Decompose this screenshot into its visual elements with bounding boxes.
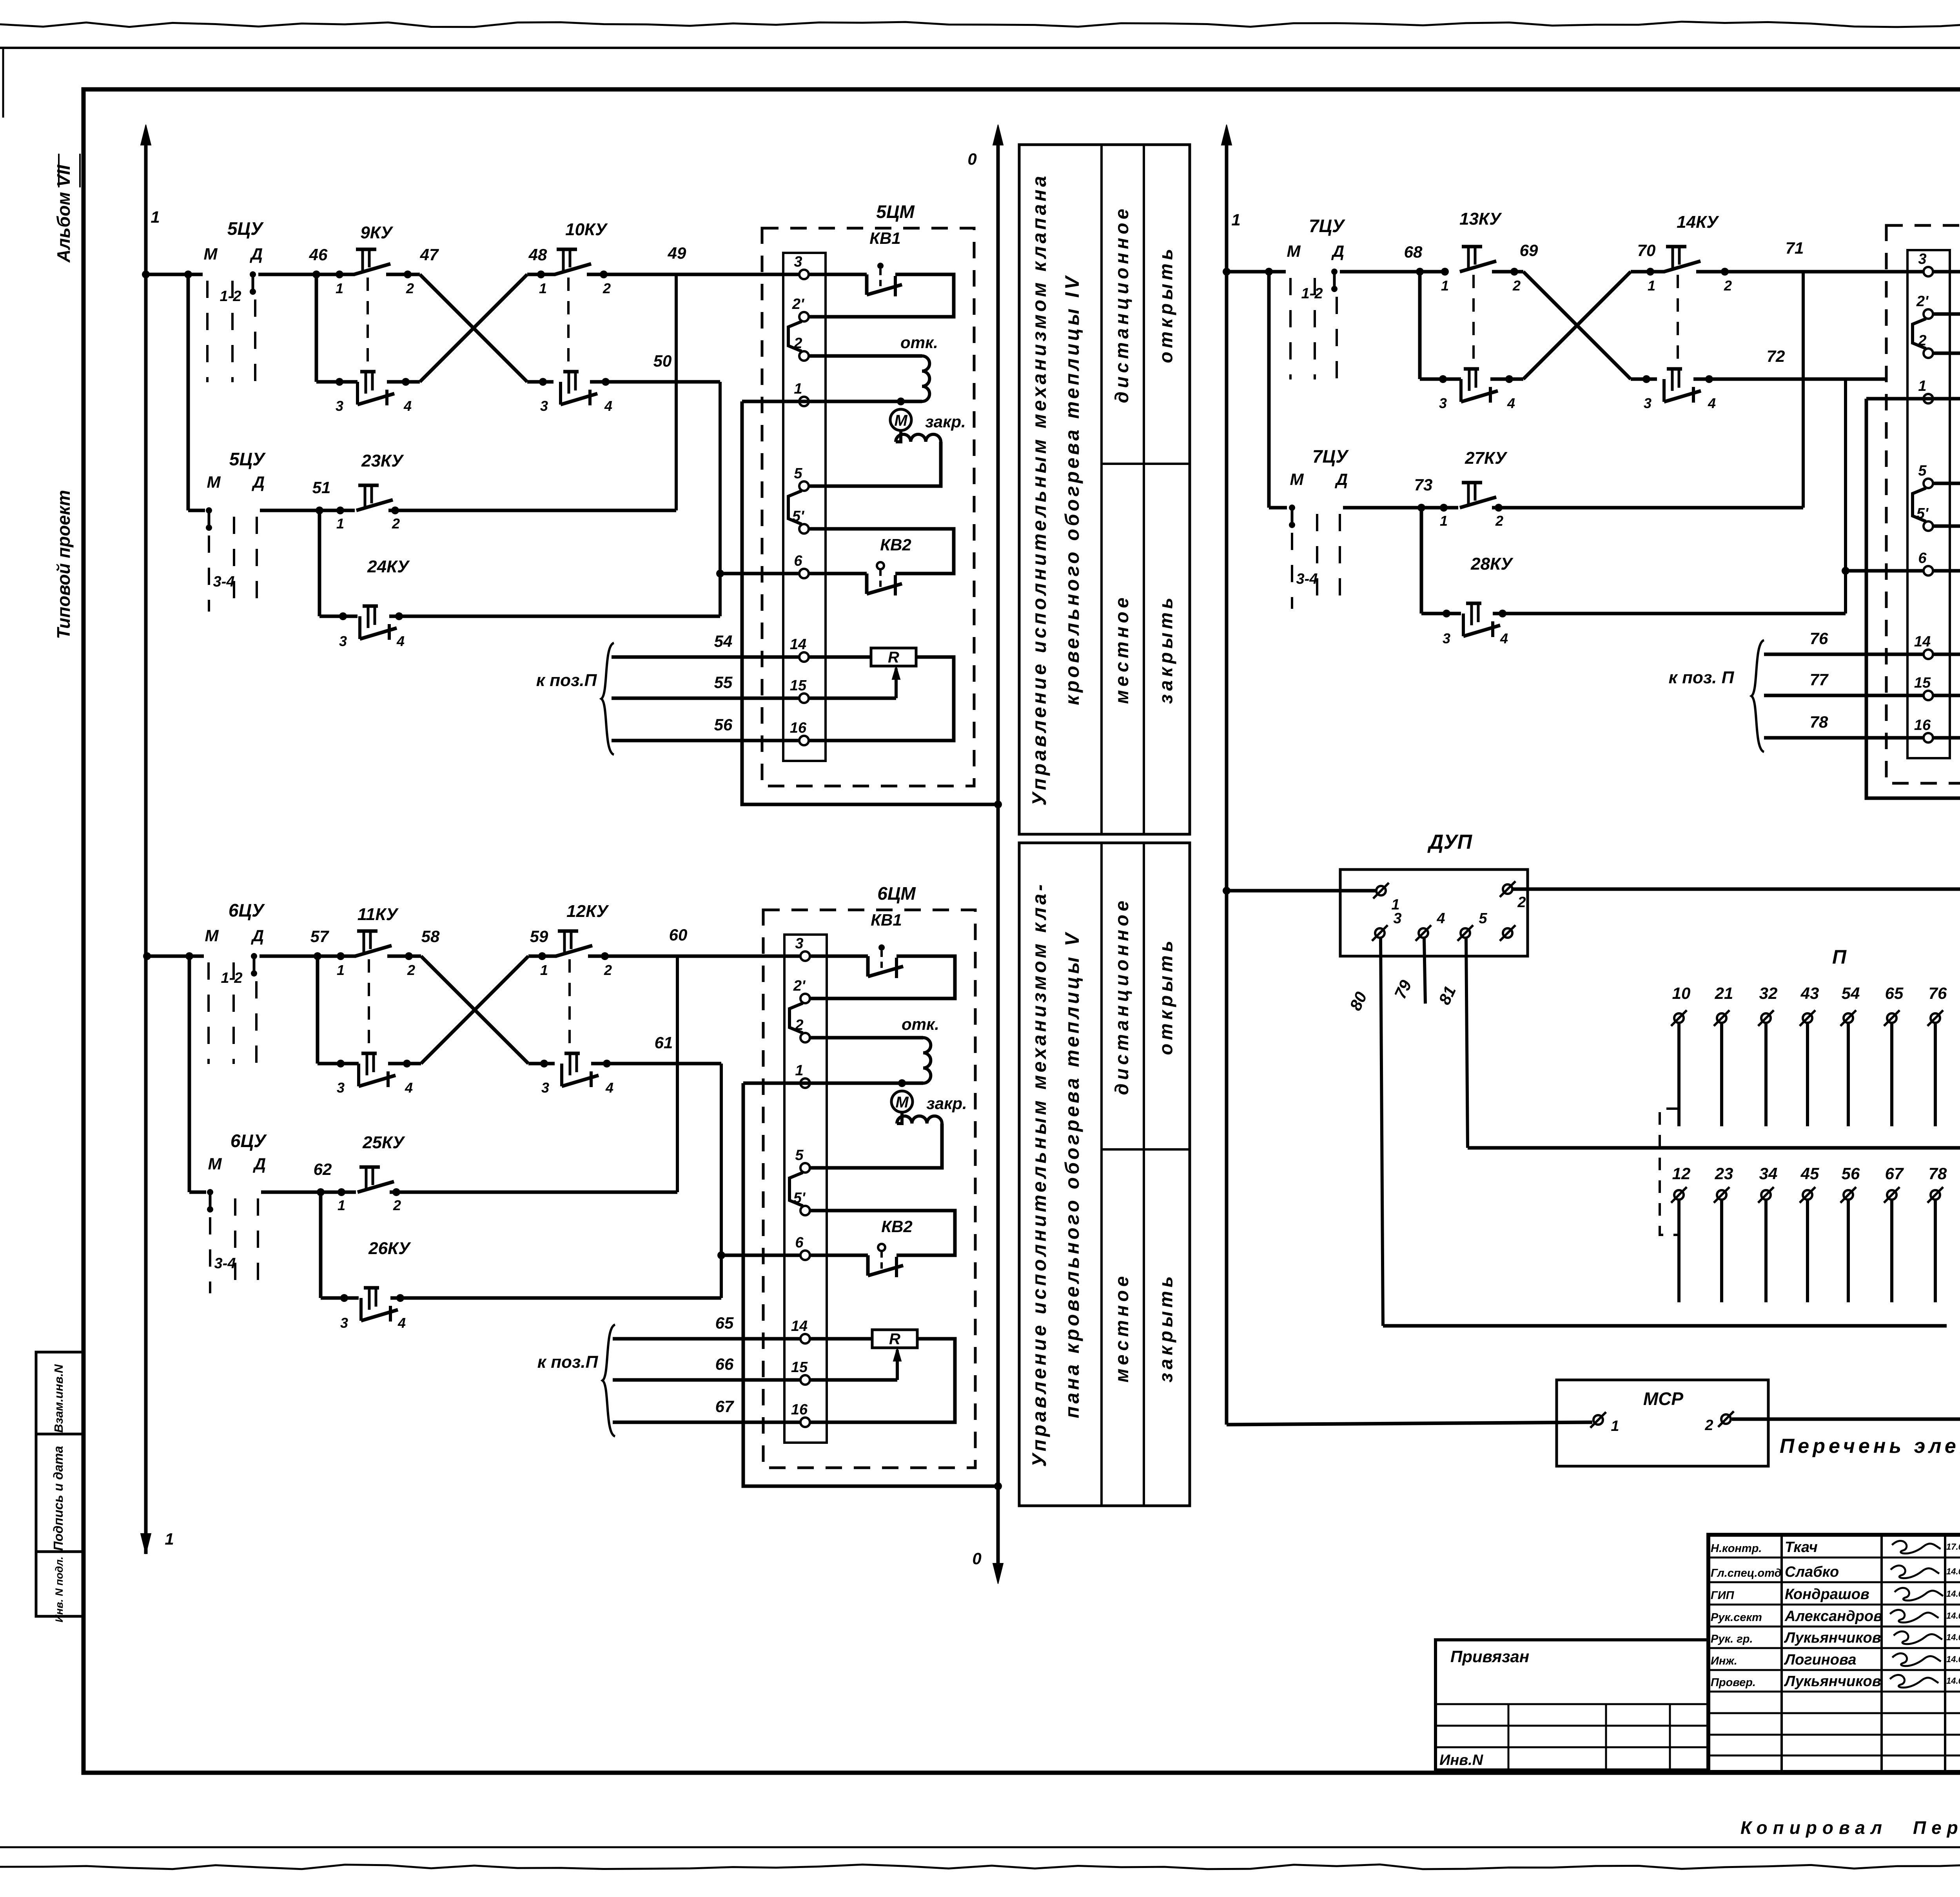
svg-text:1: 1 [1440,513,1448,529]
svg-text:Рук. гр.: Рук. гр. [1711,1633,1753,1645]
svg-text:76: 76 [1929,984,1947,1002]
svg-text:12: 12 [1672,1164,1691,1183]
svg-text:М: М [1290,470,1304,488]
svg-text:54: 54 [714,632,733,650]
svg-text:КВ1: КВ1 [869,229,901,247]
svg-text:Д: Д [250,245,263,263]
svg-text:10КУ: 10КУ [565,220,608,239]
svg-text:1: 1 [539,280,547,296]
svg-text:М: М [894,412,908,429]
svg-text:1: 1 [336,516,344,532]
svg-text:1-2: 1-2 [220,288,241,305]
svg-text:13КУ: 13КУ [1459,209,1502,229]
svg-text:7ЦУ: 7ЦУ [1312,446,1349,467]
svg-text:2: 2 [406,280,414,296]
svg-text:М: М [895,1094,909,1111]
svg-text:71: 71 [1786,239,1804,257]
svg-text:43: 43 [1800,984,1819,1002]
svg-text:Привязан: Привязан [1450,1647,1529,1666]
svg-text:1: 1 [337,962,345,978]
svg-text:11КУ: 11КУ [358,905,399,924]
svg-text:47: 47 [420,245,439,264]
svg-text:1-2: 1-2 [1301,285,1323,302]
svg-text:0: 0 [972,1549,981,1568]
svg-text:15: 15 [790,677,807,694]
svg-text:4: 4 [405,1080,413,1096]
svg-text:2: 2 [1512,278,1521,294]
svg-text:2: 2 [1517,894,1526,911]
svg-text:закрыть: закрыть [1156,1273,1177,1382]
svg-text:КВ2: КВ2 [880,536,911,554]
svg-text:П: П [1832,946,1847,968]
svg-text:6: 6 [1918,550,1927,566]
svg-text:1: 1 [1648,278,1655,294]
svg-text:3: 3 [336,398,343,414]
svg-text:2': 2' [793,978,806,994]
svg-text:3: 3 [1439,395,1447,411]
svg-text:к поз.П: к поз.П [536,671,597,690]
svg-text:59: 59 [530,927,548,946]
svg-text:48: 48 [528,245,547,264]
svg-text:14.01.86: 14.01.86 [1946,1654,1960,1664]
svg-text:1: 1 [794,381,802,397]
svg-text:60: 60 [669,926,688,944]
svg-text:дистанционное: дистанционное [1112,205,1132,403]
svg-text:5: 5 [1918,463,1927,479]
svg-text:5ЦМ: 5ЦМ [876,201,915,222]
svg-text:70: 70 [1637,241,1656,260]
svg-text:2: 2 [1704,1417,1713,1434]
svg-text:49: 49 [668,244,686,262]
svg-text:закр.: закр. [926,1094,967,1113]
svg-text:2: 2 [1724,278,1732,294]
svg-text:55: 55 [714,673,733,692]
svg-text:23: 23 [1715,1164,1733,1183]
svg-text:3: 3 [340,1315,348,1331]
svg-text:16: 16 [791,1401,808,1418]
svg-text:Слабко: Слабко [1785,1564,1839,1580]
svg-text:Лукьянчиков: Лукьянчиков [1784,1673,1881,1690]
svg-text:R: R [888,649,899,666]
svg-text:23КУ: 23КУ [361,451,404,470]
svg-text:ДУП: ДУП [1427,831,1473,853]
svg-text:14: 14 [790,636,806,653]
svg-text:2: 2 [392,516,400,532]
svg-text:72: 72 [1767,347,1785,365]
svg-text:1: 1 [165,1530,174,1548]
svg-text:50: 50 [653,352,672,370]
svg-text:14.01.86: 14.01.86 [1946,1611,1960,1621]
svg-text:2: 2 [1495,513,1503,529]
svg-text:1: 1 [795,1062,803,1079]
svg-text:69: 69 [1520,241,1538,260]
svg-text:отк.: отк. [902,1015,939,1033]
svg-text:5: 5 [794,465,802,482]
svg-text:местное: местное [1112,594,1132,704]
svg-text:67: 67 [715,1397,734,1416]
svg-text:32: 32 [1759,984,1778,1002]
svg-text:56: 56 [1842,1164,1860,1183]
svg-text:10: 10 [1672,984,1691,1002]
svg-text:Инж.: Инж. [1711,1655,1737,1667]
svg-text:4: 4 [403,398,412,414]
svg-text:R: R [889,1331,900,1348]
svg-text:4: 4 [1436,910,1445,927]
svg-text:3-4: 3-4 [1296,571,1318,587]
svg-text:к поз.П: к поз.П [537,1352,599,1372]
svg-text:Взам.инв.N: Взам.инв.N [52,1364,65,1433]
svg-text:3: 3 [1644,395,1651,411]
svg-text:Перелыгина: Перелыгина [1913,1817,1960,1838]
svg-text:34: 34 [1759,1164,1778,1183]
svg-text:Управление исполнительным ме: Управление исполнительным механизмом кла… [1028,882,1050,1467]
svg-text:к поз. П: к поз. П [1669,668,1735,687]
svg-text:68: 68 [1404,243,1423,261]
svg-text:3: 3 [337,1080,345,1096]
svg-text:ГИП: ГИП [1711,1589,1735,1602]
svg-text:Рук.сект: Рук.сект [1711,1611,1762,1624]
svg-text:3: 3 [1443,630,1450,646]
svg-text:15: 15 [791,1359,808,1376]
svg-text:51: 51 [312,478,331,497]
svg-text:закр.: закр. [925,412,965,431]
svg-text:Инв.N: Инв.N [1439,1752,1484,1768]
svg-text:Д: Д [1335,470,1348,488]
svg-text:26КУ: 26КУ [368,1239,411,1258]
svg-text:местное: местное [1112,1273,1132,1382]
svg-text:14КУ: 14КУ [1677,212,1719,232]
svg-text:Перечень элементов см. лист: Перечень элементов см. лист АТХ1- 27 [1780,1435,1960,1458]
svg-text:1: 1 [540,962,548,978]
svg-text:78: 78 [1929,1164,1947,1183]
svg-text:Альбом VII: Альбом VII [53,164,74,263]
svg-text:1: 1 [338,1197,345,1213]
svg-text:16: 16 [1914,717,1931,733]
svg-text:24КУ: 24КУ [367,557,410,576]
svg-text:закрыть: закрыть [1156,594,1177,704]
svg-text:21: 21 [1715,984,1733,1002]
svg-text:3: 3 [541,1080,549,1096]
svg-text:5ЦУ: 5ЦУ [229,449,266,469]
svg-text:2: 2 [393,1197,401,1213]
svg-text:Ткач: Ткач [1785,1539,1818,1556]
svg-text:3-4: 3-4 [214,1255,236,1272]
svg-text:дистанционное: дистанционное [1112,897,1132,1095]
svg-text:М: М [207,473,221,491]
svg-text:Кондрашов: Кондрашов [1785,1586,1869,1603]
svg-text:76: 76 [1810,629,1828,648]
svg-text:открыть: открыть [1156,245,1177,363]
svg-text:М: М [208,1155,222,1173]
svg-text:1: 1 [1611,1418,1619,1434]
svg-text:67: 67 [1885,1164,1904,1183]
svg-text:3-4: 3-4 [213,574,235,590]
svg-text:Д: Д [253,1155,266,1173]
svg-text:58: 58 [421,927,440,946]
svg-text:М: М [1287,242,1301,260]
svg-text:4: 4 [1500,630,1508,646]
svg-text:1: 1 [1231,211,1240,229]
svg-text:5: 5 [795,1147,804,1164]
svg-text:Гл.спец.отд: Гл.спец.отд [1711,1567,1782,1579]
svg-text:77: 77 [1810,670,1829,689]
svg-text:5ЦУ: 5ЦУ [227,218,264,239]
svg-text:1: 1 [151,208,160,226]
svg-text:62: 62 [314,1160,332,1178]
svg-text:57: 57 [310,927,329,946]
svg-text:4: 4 [605,1080,613,1096]
svg-text:Лукьянчиков: Лукьянчиков [1784,1630,1881,1646]
svg-text:3: 3 [339,633,347,649]
svg-text:17.01.86: 17.01.86 [1946,1542,1960,1552]
svg-text:27КУ: 27КУ [1465,448,1508,468]
svg-text:кровельного обогрева теплицы: кровельного обогрева теплицы IV [1061,274,1083,705]
svg-text:61: 61 [655,1033,673,1052]
svg-text:14.01.86: 14.01.86 [1946,1589,1960,1599]
svg-text:1: 1 [336,280,343,296]
svg-text:2': 2' [792,296,805,312]
svg-text:Управление исполнительным ме: Управление исполнительным механизмом кла… [1028,173,1050,806]
svg-text:6: 6 [795,1234,804,1251]
svg-text:открыть: открыть [1156,937,1177,1055]
svg-text:3: 3 [540,398,548,414]
svg-text:6ЦМ: 6ЦМ [877,883,916,904]
svg-text:14.01.86: 14.01.86 [1946,1632,1960,1642]
svg-text:2: 2 [603,280,611,296]
svg-text:Подпись и дата: Подпись и дата [51,1446,65,1551]
svg-text:54: 54 [1842,984,1860,1002]
svg-text:Д: Д [1331,242,1344,260]
svg-text:4: 4 [1507,395,1515,411]
svg-text:12КУ: 12КУ [566,902,609,921]
svg-text:2: 2 [407,962,415,978]
svg-text:Инв. N подл.: Инв. N подл. [53,1556,65,1622]
svg-text:1: 1 [1918,378,1926,394]
svg-text:4: 4 [1708,395,1716,411]
svg-text:3: 3 [795,935,803,952]
svg-text:45: 45 [1800,1164,1819,1183]
svg-text:46: 46 [309,245,328,264]
svg-text:66: 66 [715,1355,734,1373]
svg-text:МСР: МСР [1643,1389,1684,1409]
svg-text:4: 4 [604,398,612,414]
svg-text:25КУ: 25КУ [362,1133,405,1152]
svg-text:2: 2 [604,962,612,978]
svg-text:28КУ: 28КУ [1470,554,1514,574]
svg-text:М: М [205,926,219,945]
svg-text:14.01.86: 14.01.86 [1946,1567,1960,1576]
svg-text:1: 1 [1441,278,1449,294]
svg-text:Типовой проект: Типовой проект [53,490,74,639]
svg-text:6: 6 [794,553,802,569]
svg-text:КВ2: КВ2 [881,1217,913,1236]
svg-text:6ЦУ: 6ЦУ [230,1131,267,1151]
svg-text:3: 3 [1393,910,1401,927]
svg-text:0: 0 [967,150,976,168]
svg-text:пана кровельного обогрева т: пана кровельного обогрева теплицы V [1061,930,1083,1418]
svg-text:56: 56 [714,715,733,734]
svg-text:14: 14 [1914,634,1931,650]
svg-text:4: 4 [397,1315,406,1331]
svg-text:М: М [204,245,218,263]
svg-text:65: 65 [1885,984,1904,1002]
svg-text:2': 2' [1916,293,1929,310]
svg-text:3: 3 [1918,251,1926,267]
svg-text:9КУ: 9КУ [360,223,394,242]
svg-text:Логинова: Логинова [1784,1652,1857,1668]
svg-text:Александров: Александров [1784,1608,1882,1625]
svg-text:78: 78 [1810,713,1828,731]
svg-text:16: 16 [790,720,807,736]
svg-text:14: 14 [791,1318,808,1334]
svg-text:15: 15 [1914,675,1931,691]
svg-text:3: 3 [794,254,802,270]
svg-text:КВ1: КВ1 [871,911,902,929]
svg-text:Д: Д [252,473,265,491]
svg-text:6ЦУ: 6ЦУ [229,900,265,920]
svg-text:65: 65 [715,1314,734,1332]
svg-text:5: 5 [1479,910,1487,927]
svg-text:Н.контр.: Н.контр. [1711,1542,1762,1555]
svg-text:73: 73 [1414,476,1433,494]
svg-text:Копировал: Копировал [1740,1817,1887,1838]
svg-text:1-2: 1-2 [221,970,243,986]
svg-text:Д: Д [251,926,264,945]
svg-text:отк.: отк. [900,333,938,352]
svg-text:14.01.86: 14.01.86 [1946,1676,1960,1686]
svg-text:4: 4 [396,633,405,649]
svg-text:7ЦУ: 7ЦУ [1309,216,1346,236]
svg-text:Провер.: Провер. [1711,1676,1756,1689]
